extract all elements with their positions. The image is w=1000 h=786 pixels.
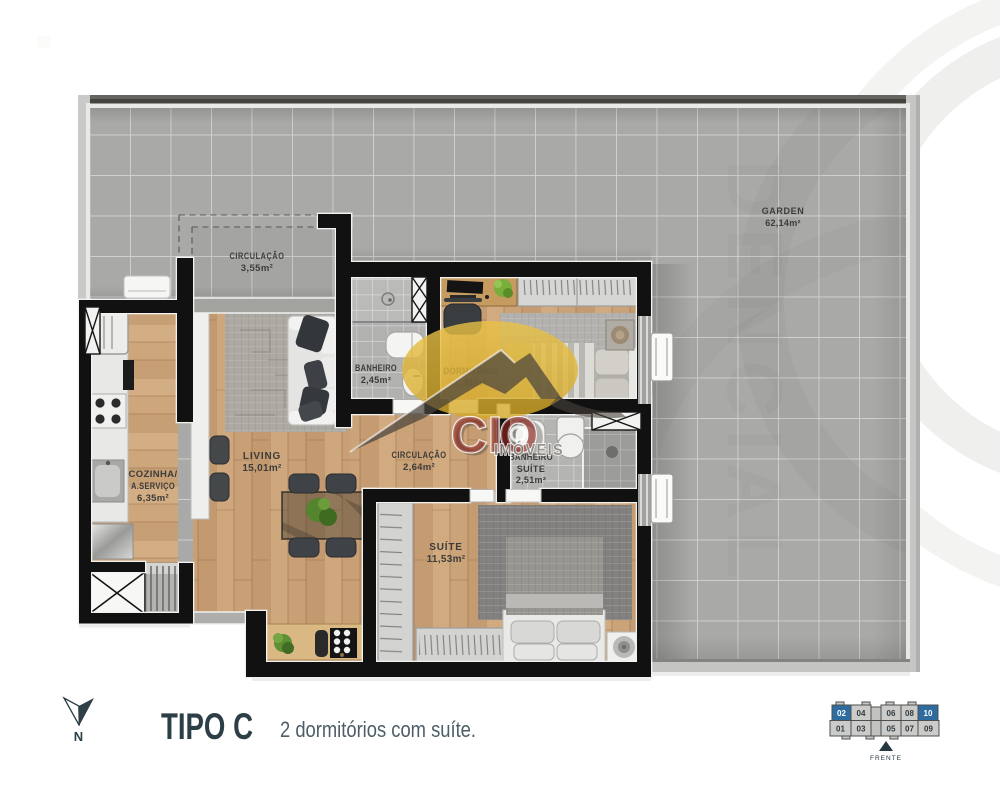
svg-text:LIVING: LIVING — [243, 451, 281, 462]
svg-text:6,35m²: 6,35m² — [137, 493, 169, 504]
svg-text:TIPO C: TIPO C — [161, 706, 253, 747]
svg-text:IMÓVEIS: IMÓVEIS — [494, 440, 564, 459]
svg-text:11,53m²: 11,53m² — [427, 554, 466, 565]
svg-text:2,64m²: 2,64m² — [403, 462, 435, 473]
svg-text:N: N — [74, 729, 83, 744]
svg-text:2,45m²: 2,45m² — [361, 375, 391, 385]
svg-text:3,55m²: 3,55m² — [241, 263, 274, 274]
svg-text:A.SERVIÇO: A.SERVIÇO — [131, 481, 175, 492]
svg-text:GARDEN: GARDEN — [762, 206, 805, 216]
svg-text:SUÍTE: SUÍTE — [429, 540, 462, 553]
svg-text:06: 06 — [887, 709, 896, 718]
svg-text:09: 09 — [924, 725, 933, 734]
svg-text:15,01m²: 15,01m² — [242, 463, 282, 474]
svg-text:2 dormitórios com suíte.: 2 dormitórios com suíte. — [280, 717, 476, 742]
svg-text:CIRCULAÇÃO: CIRCULAÇÃO — [230, 251, 285, 262]
svg-text:FRENTE: FRENTE — [870, 755, 902, 762]
svg-text:10: 10 — [924, 709, 933, 718]
svg-text:CIRCULAÇÃO: CIRCULAÇÃO — [392, 450, 447, 461]
svg-text:02: 02 — [837, 709, 846, 718]
svg-text:04: 04 — [857, 709, 866, 718]
svg-text:05: 05 — [887, 725, 896, 734]
svg-text:03: 03 — [857, 725, 866, 734]
svg-text:2,51m²: 2,51m² — [516, 475, 546, 485]
svg-text:08: 08 — [905, 709, 914, 718]
svg-text:07: 07 — [905, 725, 914, 734]
svg-text:62,14m²: 62,14m² — [765, 218, 801, 228]
svg-text:01: 01 — [836, 725, 845, 734]
svg-text:BANHEIRO: BANHEIRO — [355, 363, 397, 373]
svg-text:COZINHA/: COZINHA/ — [128, 469, 177, 480]
